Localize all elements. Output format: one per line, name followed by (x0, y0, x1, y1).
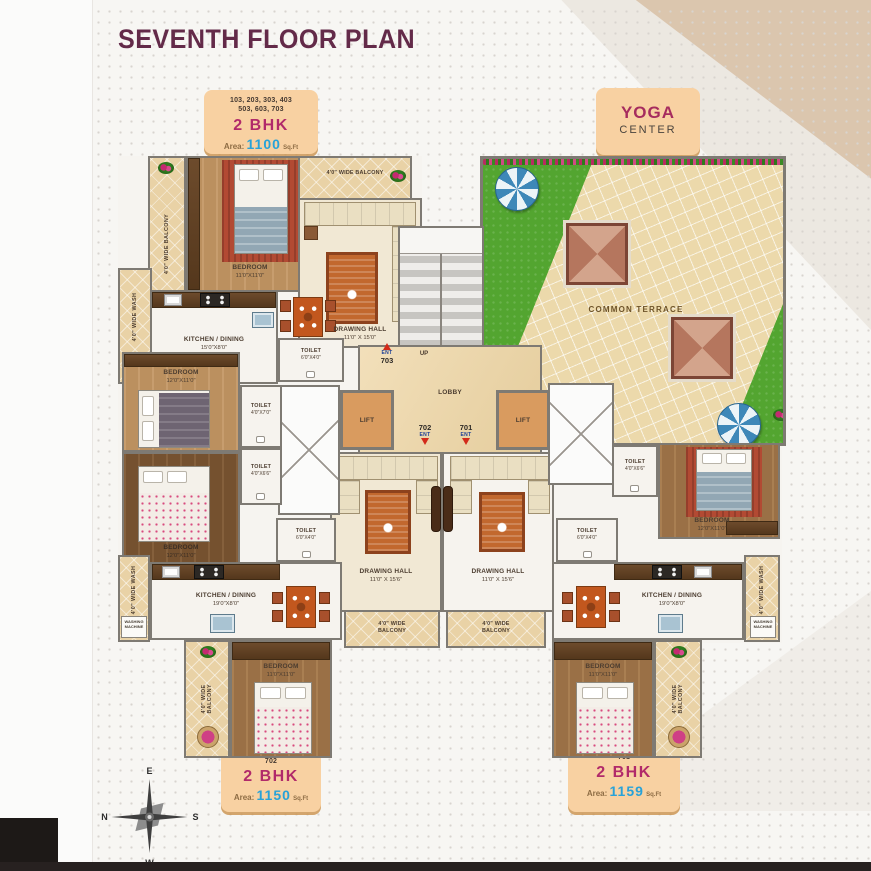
compass-rose: E N S W (95, 763, 205, 868)
toilet-fixture (306, 371, 315, 378)
sink-icon (164, 294, 182, 306)
round-chair (197, 726, 219, 748)
entrance-702: 702 ENT (411, 423, 439, 445)
unit-area: Area: 1100 Sq.Ft (204, 136, 318, 152)
kitchen-label: KITCHEN / DINING15'0"X8'0" (152, 336, 276, 353)
sofa (304, 202, 416, 226)
main-door (431, 486, 441, 532)
kitchen-label: KITCHEN / DINING19'0"X8'0" (606, 592, 738, 609)
fridge-icon (210, 614, 235, 633)
entry-arrow-icon (462, 438, 470, 445)
blanket (235, 207, 287, 253)
bedroom-label: BEDROOM12'0"X11'0" (124, 369, 238, 386)
bed (138, 390, 210, 448)
sink-icon (694, 566, 712, 578)
wash-label: 4'0" WIDE WASH (759, 566, 765, 615)
chair (272, 610, 283, 622)
bedroom-label: BEDROOM11'0"X11'0" (554, 663, 652, 680)
kitchen-label: KITCHEN / DINING19'0"X8'0" (160, 592, 292, 609)
toilet-t3: TOILET4'0"X6'6" (240, 448, 282, 505)
bedroom-703: BEDROOM11'0"X11'0" (186, 156, 314, 292)
sink-icon (162, 566, 180, 578)
bedroom-702: BEDROOM11'0"X11'0" (230, 640, 332, 758)
bedroom-label: BEDROOM11'0"X11'0" (232, 663, 330, 680)
center-label: CENTER (596, 124, 700, 136)
wardrobe (554, 642, 652, 660)
balcony-label: 4'0" WIDE BALCONY (201, 671, 213, 728)
duct-shaft-right (548, 383, 614, 485)
toilet-r1: TOILET4'0"X6'6" (612, 445, 658, 497)
compass-south-label: S (192, 812, 198, 822)
drawing-hall-label: DRAWING HALL11'0" X 15'6" (444, 568, 552, 585)
gazebo-icon (671, 317, 733, 379)
stair-landing (400, 228, 482, 254)
pillow (582, 687, 603, 699)
balcony-label: 4'0" WIDE BALCONY (164, 214, 170, 274)
entrance-703: ENT 703 (372, 343, 402, 365)
bedroom-left-2: BEDROOM12'0"X11'0" (122, 352, 240, 452)
toilet-label: TOILET6'0"X4'0" (278, 528, 334, 542)
toilet-r2: TOILET6'0"X4'0" (556, 518, 618, 562)
umbrella-icon (495, 167, 539, 211)
unit-numbers-line2: 503, 603, 703 (204, 105, 318, 114)
pillow (607, 687, 628, 699)
lift-label: LIFT (499, 417, 547, 426)
pillow (285, 687, 306, 699)
entry-arrow-icon (383, 343, 391, 350)
toilet-label: TOILET6'0"X4'0" (558, 528, 616, 542)
toilet-fixture (256, 436, 265, 443)
lobby-label: LOBBY (360, 389, 540, 398)
unit-type: 2 BHK (568, 764, 680, 782)
toilet-t4: TOILET6'0"X4'0" (276, 518, 336, 562)
bed (138, 466, 210, 542)
wardrobe (232, 642, 330, 660)
pillow (239, 169, 259, 181)
drawing-hall-701: DRAWING HALL11'0" X 15'6" (442, 452, 554, 612)
washing-machine: WASHING MACHINE (121, 616, 147, 638)
entry-arrow-icon (421, 438, 429, 445)
unit-numbers-line1: 103, 203, 303, 403 (204, 96, 318, 105)
compass-east-label: E (146, 766, 152, 776)
flower-border-icon (483, 159, 786, 165)
wash-area-702: 4'0" WIDE WASH WASHING MACHINE (118, 555, 150, 642)
bush-icon (773, 409, 786, 421)
blanket (159, 393, 209, 447)
fridge-icon (252, 312, 274, 328)
pillow (260, 687, 281, 699)
chair (280, 320, 291, 332)
page-title: SEVENTH FLOOR PLAN (118, 24, 415, 55)
toilet-t2: TOILET4'0"X7'0" (240, 385, 282, 448)
wash-label: 4'0" WIDE WASH (131, 566, 137, 615)
bedroom-701: BEDROOM11'0"X11'0" (552, 640, 654, 758)
balcony-label: 4'0" WIDE BALCONY (448, 621, 544, 636)
pillow (702, 453, 722, 464)
chair (319, 592, 330, 604)
fridge-icon (658, 614, 683, 633)
main-door (443, 486, 453, 532)
footer-bar (0, 862, 871, 871)
blanket (255, 707, 311, 753)
balcony-top-703: 4'0" WIDE BALCONY (298, 156, 412, 200)
round-chair (668, 726, 690, 748)
chair (325, 300, 336, 312)
page-left-margin (0, 0, 93, 871)
wardrobe (124, 354, 238, 367)
bed (254, 682, 312, 754)
lift-right: LIFT (496, 390, 550, 450)
pillow (142, 421, 154, 441)
wash-area-701: 4'0" WIDE WASH WASHING MACHINE (744, 555, 780, 642)
bed (576, 682, 634, 754)
bush-icon (671, 646, 687, 658)
terrace-label: COMMON TERRACE (541, 305, 731, 314)
bush-icon (200, 646, 216, 658)
yoga-label: YOGA (596, 103, 700, 123)
stove-icon (652, 565, 682, 579)
bed (696, 449, 752, 511)
pillow (263, 169, 283, 181)
sofa (338, 456, 438, 480)
toilet-label: TOILET4'0"X7'0" (242, 403, 280, 417)
up-label: UP (410, 351, 438, 357)
kitchen-701: KITCHEN / DINING19'0"X8'0" (552, 562, 744, 640)
duct-shaft-left (278, 385, 340, 515)
gazebo-icon (566, 223, 628, 285)
toilet-fixture (302, 551, 311, 558)
unit-area: Area: 1159 Sq.Ft (568, 783, 680, 799)
sofa (450, 480, 472, 514)
rug (365, 490, 411, 554)
lift-left: LIFT (340, 390, 394, 450)
compass-north-label: N (101, 812, 108, 822)
bedroom-label: BEDROOM11'0"X11'0" (188, 264, 312, 281)
drawing-hall-label: DRAWING HALL11'0" X 15'6" (332, 568, 440, 585)
chair (562, 592, 573, 604)
bedroom-label: BEDROOM12'0"X11'0" (646, 517, 778, 534)
chair (562, 610, 573, 622)
blanket (697, 472, 751, 510)
rug (479, 492, 525, 552)
floor-plan-page: SEVENTH FLOOR PLAN 103, 203, 303, 403 50… (0, 0, 871, 871)
wash-label: 4'0" WIDE WASH (132, 293, 138, 342)
sofa (338, 480, 360, 514)
washing-machine: WASHING MACHINE (750, 616, 776, 638)
floor-plan: COMMON TERRACE 4'0" WIDE BALCONY BEDROOM… (118, 152, 786, 762)
balcony-702-bottom: 4'0" WIDE BALCONY (344, 610, 440, 648)
yoga-center-badge: YOGA CENTER (596, 88, 700, 155)
balcony-label: 4'0" WIDE BALCONY (346, 621, 438, 636)
chair (609, 610, 620, 622)
toilet-label: TOILET4'0"X6'6" (614, 459, 656, 473)
umbrella-icon (717, 403, 761, 446)
bedroom-left-3: BEDROOM12'0"X11'0" (122, 452, 240, 564)
kitchen-702: KITCHEN / DINING19'0"X8'0" (150, 562, 342, 640)
sofa (528, 480, 550, 514)
drawing-hall-702: DRAWING HALL11'0" X 15'6" (330, 452, 442, 612)
toilet-fixture (256, 493, 265, 500)
pillow (143, 471, 163, 483)
pillow (726, 453, 746, 464)
blanket (577, 707, 633, 753)
bed (234, 164, 288, 254)
pillow (142, 396, 154, 416)
balcony-702-side: 4'0" WIDE BALCONY (184, 640, 230, 758)
unit-badge-typical-floors: 103, 203, 303, 403 503, 603, 703 2 BHK A… (204, 90, 318, 154)
blanket (139, 493, 209, 541)
toilet-fixture (583, 551, 592, 558)
toilet-t1: TOILET6'0"X4'0" (278, 338, 344, 382)
stove-icon (194, 565, 224, 579)
dining-table (576, 586, 606, 628)
drawing-hall-label: DRAWING HALL11'0" X 15'0" (300, 326, 420, 343)
bedroom-right-2: BEDROOM12'0"X11'0" (658, 443, 780, 539)
pillow (167, 471, 187, 483)
bedroom-label: BEDROOM12'0"X11'0" (124, 544, 238, 561)
stove-icon (200, 293, 230, 307)
balcony-label: 4'0" WIDE BALCONY (672, 671, 684, 728)
unit-type: 2 BHK (221, 768, 321, 786)
balcony-701-side: 4'0" WIDE BALCONY (654, 640, 702, 758)
sofa (450, 456, 550, 480)
balcony-701-bottom: 4'0" WIDE BALCONY (446, 610, 546, 648)
chair (280, 300, 291, 312)
entrance-701: 701 ENT (452, 423, 480, 445)
unit-type: 2 BHK (204, 117, 318, 135)
stair-rail (440, 254, 442, 346)
unit-area: Area: 1150 Sq.Ft (221, 787, 321, 803)
balcony-label: 4'0" WIDE BALCONY (300, 170, 410, 177)
toilet-fixture (630, 485, 639, 492)
chair (319, 610, 330, 622)
toilet-label: TOILET6'0"X4'0" (280, 348, 342, 362)
sofa-armrest (304, 226, 318, 240)
toilet-label: TOILET4'0"X6'6" (242, 464, 280, 478)
lift-label: LIFT (343, 417, 391, 426)
bush-icon (158, 162, 174, 174)
